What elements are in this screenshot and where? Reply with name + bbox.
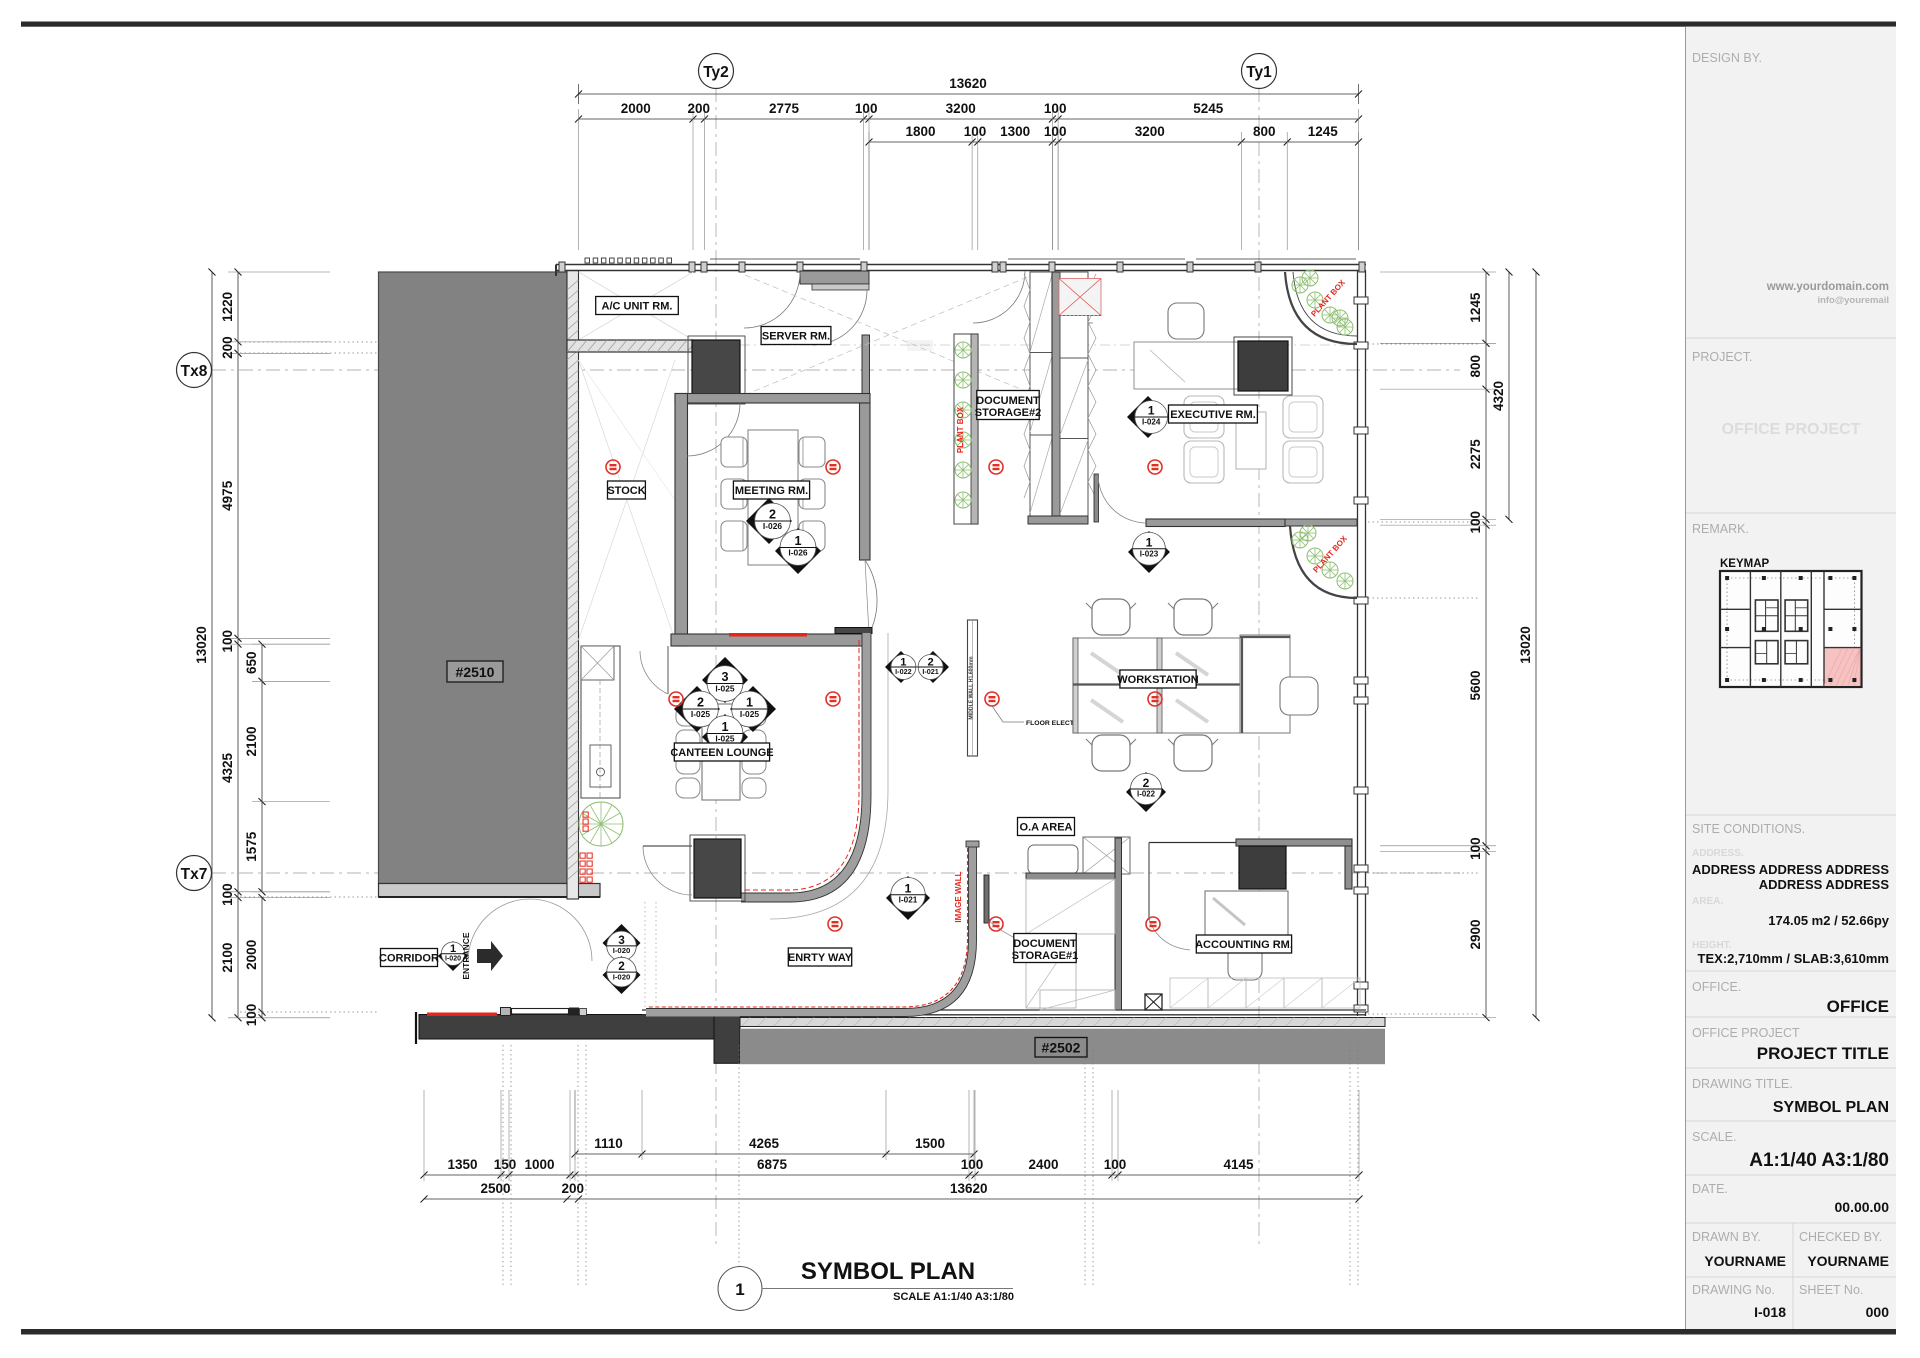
svg-text:5600: 5600 [1468, 670, 1483, 700]
svg-text:1220: 1220 [220, 292, 235, 322]
svg-text:ADDRESS ADDRESS ADDRESS: ADDRESS ADDRESS ADDRESS [1692, 862, 1889, 877]
svg-text:100: 100 [1044, 124, 1067, 139]
svg-text:2100: 2100 [244, 726, 259, 756]
svg-text:SCALE.: SCALE. [1692, 1130, 1736, 1144]
svg-text:2000: 2000 [621, 101, 651, 116]
svg-text:2: 2 [769, 508, 776, 522]
svg-text:200: 200 [562, 1181, 585, 1196]
svg-text:2775: 2775 [769, 101, 800, 116]
svg-text:100: 100 [961, 1157, 984, 1172]
svg-text:ENRTY WAY: ENRTY WAY [788, 952, 853, 964]
svg-text:KEYMAP: KEYMAP [1720, 558, 1770, 570]
svg-text:I-022: I-022 [1137, 790, 1156, 799]
svg-text:I-020: I-020 [613, 946, 631, 955]
svg-text:100: 100 [1044, 101, 1067, 116]
svg-text:1500: 1500 [915, 1136, 945, 1151]
svg-text:I-025: I-025 [740, 709, 759, 719]
svg-text:I-026: I-026 [788, 548, 807, 558]
svg-text:3200: 3200 [1135, 124, 1165, 139]
svg-text:2: 2 [618, 959, 625, 973]
svg-text:CHECKED BY.: CHECKED BY. [1799, 1230, 1882, 1244]
svg-text:Ty1: Ty1 [1246, 64, 1272, 81]
svg-text:YOURNAME: YOURNAME [1807, 1253, 1889, 1269]
svg-text:1: 1 [905, 881, 912, 895]
svg-text:A1:1/40 A3:1/80: A1:1/40 A3:1/80 [1749, 1150, 1889, 1171]
svg-text:1: 1 [450, 943, 456, 955]
svg-text:DOCUMENT: DOCUMENT [1013, 938, 1077, 950]
svg-text:I-018: I-018 [1754, 1304, 1786, 1320]
svg-text:650: 650 [244, 651, 259, 674]
svg-text:I-026: I-026 [763, 521, 782, 531]
svg-text:DRAWN BY.: DRAWN BY. [1692, 1230, 1761, 1244]
svg-text:DESIGN BY.: DESIGN BY. [1692, 51, 1762, 65]
svg-text:1575: 1575 [244, 831, 259, 862]
svg-text:IMAGE WALL: IMAGE WALL [954, 871, 963, 922]
svg-text:00.00.00: 00.00.00 [1835, 1199, 1890, 1215]
svg-text:AREA.: AREA. [1692, 896, 1723, 907]
svg-text:I-025: I-025 [715, 734, 734, 744]
svg-text:100: 100 [964, 124, 987, 139]
svg-text:1800: 1800 [905, 124, 935, 139]
svg-text:ADDRESS.: ADDRESS. [1692, 848, 1744, 859]
svg-text:CORRIDOR: CORRIDOR [379, 953, 439, 965]
svg-text:REMARK.: REMARK. [1692, 522, 1749, 536]
svg-text:Tx7: Tx7 [181, 866, 208, 883]
svg-text:100: 100 [220, 883, 235, 906]
svg-text:WORKSTATION: WORKSTATION [1117, 674, 1199, 686]
svg-text:1: 1 [721, 720, 728, 734]
svg-text:2400: 2400 [1028, 1157, 1058, 1172]
svg-text:1: 1 [794, 534, 801, 548]
svg-text:I-020: I-020 [445, 955, 461, 962]
svg-text:174.05 m2 / 52.66py: 174.05 m2 / 52.66py [1768, 913, 1889, 928]
svg-text:150: 150 [494, 1157, 517, 1172]
svg-text:▒▒▒▒: ▒▒▒▒ [907, 340, 933, 351]
svg-text:Ty2: Ty2 [703, 64, 729, 81]
svg-text:13620: 13620 [949, 76, 987, 91]
svg-text:SERVER RM.: SERVER RM. [762, 331, 830, 343]
svg-text:1110: 1110 [594, 1136, 623, 1151]
svg-text:I-023: I-023 [1140, 550, 1159, 559]
svg-text:100: 100 [1468, 511, 1483, 534]
svg-text:4975: 4975 [220, 480, 235, 511]
svg-text:I-025: I-025 [715, 684, 734, 694]
svg-text:100: 100 [1468, 837, 1483, 860]
svg-text:2: 2 [697, 696, 704, 710]
svg-text:3: 3 [721, 670, 728, 684]
svg-text:I-022: I-022 [895, 667, 911, 676]
svg-text:ENTRANCE: ENTRANCE [461, 932, 471, 980]
svg-text:1245: 1245 [1468, 292, 1483, 323]
svg-text:I-020: I-020 [613, 973, 631, 982]
svg-text:I-025: I-025 [691, 709, 710, 719]
svg-text:100: 100 [244, 1004, 259, 1027]
svg-text:800: 800 [1468, 355, 1483, 378]
svg-text:#2510: #2510 [456, 664, 495, 680]
svg-text:100: 100 [1104, 1157, 1127, 1172]
svg-text:I-021: I-021 [922, 667, 938, 676]
svg-text:2000: 2000 [244, 940, 259, 970]
svg-text:STORAGE#1: STORAGE#1 [1012, 950, 1078, 962]
svg-text:3: 3 [618, 933, 625, 947]
svg-text:1: 1 [735, 1280, 744, 1299]
svg-text:A/C UNIT RM.: A/C UNIT RM. [602, 301, 673, 313]
svg-text:4145: 4145 [1223, 1157, 1254, 1172]
svg-text:13020: 13020 [1518, 626, 1533, 664]
svg-text:I-024: I-024 [1142, 418, 1161, 427]
svg-text:DRAWING No.: DRAWING No. [1692, 1283, 1775, 1297]
svg-text:O.A AREA: O.A AREA [1020, 822, 1073, 834]
svg-text:SITE CONDITIONS.: SITE CONDITIONS. [1692, 822, 1805, 836]
svg-text:ADDRESS ADDRESS: ADDRESS ADDRESS [1759, 877, 1890, 892]
svg-text:000: 000 [1866, 1304, 1890, 1320]
svg-text:3200: 3200 [946, 101, 976, 116]
svg-text:STORAGE#2: STORAGE#2 [975, 407, 1041, 419]
svg-text:OFFICE: OFFICE [1827, 997, 1889, 1016]
svg-text:I-021: I-021 [899, 896, 918, 905]
svg-text:DRAWING TITLE.: DRAWING TITLE. [1692, 1077, 1793, 1091]
svg-text:STOCK: STOCK [607, 485, 645, 497]
svg-text:6875: 6875 [757, 1157, 788, 1172]
svg-text:MEETING RM.: MEETING RM. [735, 485, 808, 497]
svg-text:800: 800 [1253, 124, 1276, 139]
svg-text:info@youremail: info@youremail [1817, 295, 1889, 306]
svg-text:13020: 13020 [194, 626, 209, 664]
svg-text:1: 1 [746, 696, 753, 710]
svg-text:#2502: #2502 [1042, 1040, 1081, 1056]
svg-text:2100: 2100 [220, 943, 235, 973]
svg-text:2275: 2275 [1468, 439, 1483, 470]
svg-text:SYMBOL PLAN: SYMBOL PLAN [801, 1258, 975, 1285]
svg-text:TEX:2,710mm / SLAB:3,610mm: TEX:2,710mm / SLAB:3,610mm [1698, 951, 1889, 966]
svg-text:SYMBOL PLAN: SYMBOL PLAN [1773, 1099, 1889, 1116]
svg-text:MIDDLE WALL H1,600mm: MIDDLE WALL H1,600mm [969, 656, 975, 720]
svg-text:YOURNAME: YOURNAME [1704, 1253, 1786, 1269]
svg-text:HEIGHT.: HEIGHT. [1692, 940, 1732, 951]
svg-text:1245: 1245 [1308, 124, 1339, 139]
svg-text:100: 100 [855, 101, 878, 116]
svg-text:13620: 13620 [950, 1181, 988, 1196]
svg-text:1: 1 [1146, 536, 1153, 550]
svg-text:DOCUMENT: DOCUMENT [976, 395, 1040, 407]
svg-text:PROJECT.: PROJECT. [1692, 350, 1752, 364]
svg-text:OFFICE PROJECT: OFFICE PROJECT [1692, 1026, 1800, 1040]
svg-text:DATE.: DATE. [1692, 1182, 1728, 1196]
svg-text:4265: 4265 [749, 1136, 780, 1151]
svg-text:200: 200 [220, 336, 235, 359]
svg-text:4320: 4320 [1491, 381, 1506, 411]
svg-text:OFFICE PROJECT: OFFICE PROJECT [1722, 421, 1861, 438]
svg-text:1000: 1000 [524, 1157, 554, 1172]
svg-text:1350: 1350 [447, 1157, 477, 1172]
svg-text:200: 200 [688, 101, 711, 116]
svg-text:ACCOUNTING RM.: ACCOUNTING RM. [1195, 939, 1293, 951]
svg-text:SHEET No.: SHEET No. [1799, 1283, 1863, 1297]
svg-text:PLANT BOX: PLANT BOX [956, 406, 965, 453]
svg-text:100: 100 [220, 630, 235, 653]
svg-text:PROJECT TITLE: PROJECT TITLE [1757, 1044, 1889, 1063]
svg-text:SCALE A1:1/40 A3:1/80: SCALE A1:1/40 A3:1/80 [893, 1291, 1014, 1303]
svg-text:1: 1 [1148, 404, 1155, 418]
svg-text:5245: 5245 [1193, 101, 1224, 116]
svg-text:4325: 4325 [220, 752, 235, 783]
svg-text:OFFICE.: OFFICE. [1692, 980, 1741, 994]
svg-text:2: 2 [1143, 776, 1150, 790]
svg-text:2500: 2500 [480, 1181, 510, 1196]
svg-text:2900: 2900 [1468, 919, 1483, 949]
svg-text:Tx8: Tx8 [181, 363, 208, 380]
svg-text:CANTEEN LOUNGE: CANTEEN LOUNGE [670, 747, 773, 759]
svg-text:1300: 1300 [1000, 124, 1030, 139]
svg-text:EXECUTIVE RM.: EXECUTIVE RM. [1170, 409, 1256, 421]
svg-text:www.yourdomain.com: www.yourdomain.com [1766, 281, 1889, 293]
